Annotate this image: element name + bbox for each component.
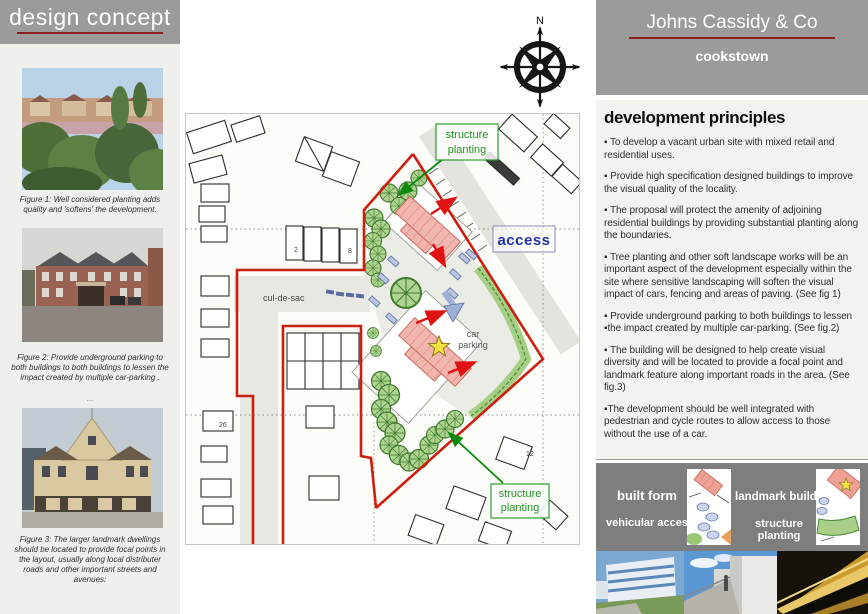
figure2-caption: Figure 2: Provide underground parking to… xyxy=(9,353,171,383)
figure2-note: ... xyxy=(9,394,171,403)
legend-structure-planting: structure planting xyxy=(748,518,810,542)
legend-built-form: built form xyxy=(617,488,677,503)
compass-north-label: N xyxy=(536,15,544,27)
legend-thumbnail-built-form xyxy=(687,469,731,545)
company-underline xyxy=(629,37,835,39)
reference-photo-strip xyxy=(596,551,868,614)
car-parking-label-1: car xyxy=(467,329,480,339)
town-name: cookstown xyxy=(596,48,868,64)
site-plan-map: 2 8 26 12 xyxy=(185,113,580,545)
compass-rose: N xyxy=(498,10,582,110)
legend-thumbnail-landmark xyxy=(816,469,860,545)
photo-golden-canopy xyxy=(777,551,868,614)
title-underline xyxy=(17,32,163,34)
figure1-caption: Figure 1: Well considered planting adds … xyxy=(9,195,171,215)
principle-item: ▪ To develop a vacant urban site with mi… xyxy=(604,137,861,162)
svg-text:structure: structure xyxy=(446,129,489,141)
photo-glass-office xyxy=(596,551,684,614)
car-parking-label-2: parking xyxy=(458,340,488,350)
svg-text:2: 2 xyxy=(294,247,298,254)
access-label: access xyxy=(497,232,550,249)
company-name: Johns Cassidy & Co xyxy=(596,12,868,34)
cul-de-sac-label: cul-de-sac xyxy=(263,293,305,303)
figure2-photo xyxy=(22,228,163,342)
figure3-caption: Figure 3: The larger landmark dwellings … xyxy=(9,535,171,585)
svg-text:26: 26 xyxy=(219,422,227,429)
figure1-photo xyxy=(22,68,163,190)
design-concept-header: design concept xyxy=(0,0,180,44)
figure3-photo xyxy=(22,408,163,528)
photo-white-building xyxy=(684,551,777,614)
company-header: Johns Cassidy & Co cookstown xyxy=(596,0,868,95)
svg-text:12: 12 xyxy=(526,451,534,458)
principle-item: ▪ Tree planting and other soft landscape… xyxy=(604,252,861,302)
svg-text:8: 8 xyxy=(348,248,352,255)
development-principles-panel: development principles ▪ To develop a va… xyxy=(596,100,868,460)
principle-item: ▪The development should be well integrat… xyxy=(604,404,861,442)
page-title: design concept xyxy=(0,4,180,31)
svg-text:structure: structure xyxy=(499,488,542,500)
legend-vehicular-access: vehicular access xyxy=(606,517,694,529)
principle-item: ▪ The building will be designed to help … xyxy=(604,345,861,395)
svg-text:planting: planting xyxy=(501,502,540,514)
principle-item: ▪ Provide underground parking to both bu… xyxy=(604,311,861,336)
principle-item: ▪ The proposal will protect the amenity … xyxy=(604,205,861,243)
left-sidebar: design concept Figure 1: Well considered… xyxy=(0,0,180,614)
map-legend: built form vehicular access landmark bui… xyxy=(596,463,868,551)
principle-item: ▪ Provide high specification designed bu… xyxy=(604,171,861,196)
principles-title: development principles xyxy=(604,108,861,128)
svg-text:planting: planting xyxy=(448,144,487,156)
